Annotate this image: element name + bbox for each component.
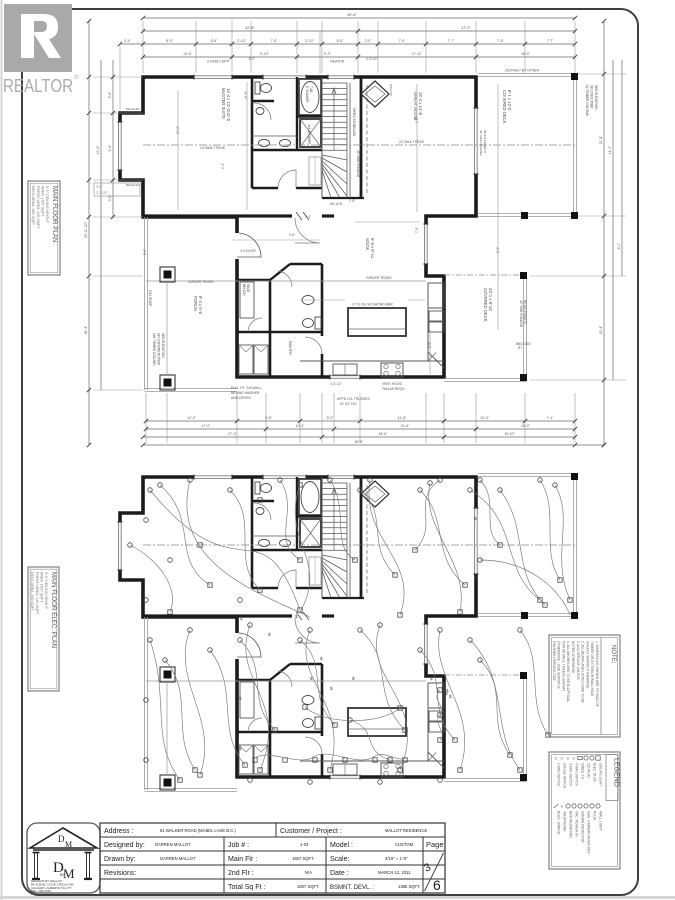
svg-text:CABLE T.V.: CABLE T.V. (581, 763, 585, 780)
svg-text:9'-9 x 9'-11: 9'-9 x 9'-11 (370, 238, 375, 259)
svg-text:56'-4": 56'-4" (84, 325, 88, 334)
svg-text:AREA: 1607 SQFT.: AREA: 1607 SQFT. (39, 572, 43, 603)
svg-text:FAN AS REQD: FAN AS REQD (382, 387, 405, 391)
svg-text:SEE ELEVATION: SEE ELEVATION (161, 333, 165, 358)
svg-text:14'-4 x 13'-0/12'-0: 14'-4 x 13'-0/12'-0 (226, 88, 231, 122)
svg-text:AREA: 1607 SQFT.: AREA: 1607 SQFT. (40, 186, 44, 217)
svg-text:ELEC. WIRING: ELEC. WIRING (557, 811, 561, 835)
svg-text:42" HIGH RAILING: 42" HIGH RAILING (519, 300, 523, 328)
svg-text:2-2436 CUPP: 2-2436 CUPP (207, 60, 230, 64)
svg-text:6'-6": 6'-6" (108, 144, 112, 152)
svg-text:AT 24" O/C: AT 24" O/C (340, 402, 357, 406)
svg-text:7'-7": 7'-7" (448, 39, 456, 43)
svg-text:7'-7": 7'-7" (547, 39, 555, 43)
svg-text:BENCH: BENCH (242, 284, 246, 296)
svg-text:ELEC. PLUG: ELEC. PLUG (593, 763, 597, 782)
svg-text:SINGLE SWITCH: SINGLE SWITCH (563, 763, 567, 789)
svg-text:9'-3": 9'-3" (324, 52, 332, 56)
svg-text:7'-0": 7'-0" (271, 39, 279, 43)
svg-text:Date :: Date : (330, 870, 349, 877)
svg-text:OPEN TO BELOW: OPEN TO BELOW (352, 108, 356, 137)
svg-text:Revisions:: Revisions: (104, 870, 136, 877)
svg-text:25'-10 1/2": 25'-10 1/2" (84, 221, 88, 238)
svg-text:DECK AREA: 589 SQFT.: DECK AREA: 589 SQFT. (31, 186, 35, 226)
svg-text:®: ® (74, 73, 79, 81)
svg-text:BEHIND WASHER: BEHIND WASHER (231, 391, 260, 395)
svg-text:Scale:: Scale: (330, 856, 350, 863)
svg-text:12'-4": 12'-4" (480, 416, 489, 420)
svg-text:6'-0": 6'-0" (617, 242, 621, 250)
svg-text:3'-4": 3'-4" (124, 39, 132, 43)
svg-text:Total Sq Ft :: Total Sq Ft : (228, 884, 265, 891)
svg-text:17'-11": 17'-11" (412, 52, 423, 56)
svg-text:BEVELED: BEVELED (126, 107, 141, 111)
svg-text:23'-1 x 8'-10: 23'-1 x 8'-10 (488, 288, 493, 311)
svg-text:NOTED OTHERWISE: NOTED OTHERWISE (571, 641, 575, 674)
svg-text:3'-6": 3'-6" (96, 185, 102, 189)
svg-text:3. ALL ARCHES ARE TO BE ELLIPT: 3. ALL ARCHES ARE TO BE ELLIPTICAL (566, 641, 570, 702)
svg-text:14 VAULT PEAK: 14 VAULT PEAK (200, 146, 226, 150)
svg-text:ON CONCRETE PIER: ON CONCRETE PIER (156, 333, 160, 366)
svg-text:3 WAY SWITCH: 3 WAY SWITCH (569, 763, 573, 787)
svg-text:3'-8": 3'-8" (108, 194, 112, 202)
svg-text:BEVELED: BEVELED (126, 183, 141, 187)
svg-text:N/A: N/A (305, 870, 312, 875)
svg-text:TIMBER OR EXTERIOR WALL FACE: TIMBER OR EXTERIOR WALL FACE (590, 641, 594, 697)
svg-text:2x6 TIMBER COLUMN: 2x6 TIMBER COLUMN (152, 333, 156, 366)
svg-text:FOR DETAILS. UNLESS SHOWN: FOR DETAILS. UNLESS SHOWN (561, 641, 565, 692)
svg-text:MAIN FLOOR PLAN: MAIN FLOOR PLAN (51, 186, 58, 242)
svg-text:PORCH AREA: 130 SQFT.: PORCH AREA: 130 SQFT. (35, 572, 39, 615)
svg-text:15'-4": 15'-4" (599, 325, 603, 334)
svg-text:WALL LIGHT: WALL LIGHT (599, 811, 603, 831)
svg-text:9'-1" CEILING HEIGHT: 9'-1" CEILING HEIGHT (44, 572, 48, 610)
svg-text:3'-10": 3'-10" (305, 39, 314, 43)
svg-text:FINISHED OPENING SIZE: FINISHED OPENING SIZE (552, 641, 556, 682)
svg-text:Designed by:: Designed by: (104, 842, 145, 849)
svg-text:18'-6": 18'-6" (379, 432, 388, 436)
svg-text:1-03: 1-03 (300, 842, 309, 847)
svg-text:4'-0 DOOR: 4'-0 DOOR (240, 249, 256, 253)
svg-text:COVERED DECK: COVERED DECK (502, 90, 507, 124)
svg-text:7'-4": 7'-4" (399, 39, 407, 43)
svg-text:Page: Page (426, 840, 444, 849)
svg-text:DARREN MALLOT: DARREN MALLOT (160, 856, 196, 861)
svg-text:MALLOT RESIDENCE: MALLOT RESIDENCE (385, 828, 427, 833)
svg-text:1. DIMENSIONS SHOWN ARE TO FAC: 1. DIMENSIONS SHOWN ARE TO FACE OF (595, 641, 599, 707)
svg-text:W/ 2x2 PICKETS: W/ 2x2 PICKETS (523, 300, 527, 324)
svg-text:17 FL ISL W/ EATING BAR: 17 FL ISL W/ EATING BAR (352, 303, 393, 307)
svg-text:DN 16 R: DN 16 R (330, 202, 343, 206)
svg-text:CEILING LIGHT: CEILING LIGHT (599, 763, 603, 786)
svg-text:7'-8": 7'-8" (415, 227, 419, 233)
svg-text:2x6 RAILY BY OTHER: 2x6 RAILY BY OTHER (505, 69, 540, 73)
svg-text:8'-4 x 6'-0: 8'-4 x 6'-0 (198, 296, 203, 315)
svg-text:VENT HOOD: VENT HOOD (382, 382, 403, 386)
svg-text:LEGEND: LEGEND (613, 758, 620, 787)
svg-text:NOTE:: NOTE: (610, 645, 616, 664)
svg-text:GIRDER TRUSS: GIRDER TRUSS (366, 276, 392, 280)
svg-text:2. ALL BEAMS AND LINTELS ARE T: 2. ALL BEAMS AND LINTELS ARE TO BE (581, 641, 585, 704)
svg-text:Address :: Address : (104, 828, 134, 835)
svg-text:220 PLUG: 220 PLUG (587, 763, 591, 778)
svg-text:PLUG: PLUG (593, 811, 597, 821)
svg-text:Job # :: Job # : (228, 842, 249, 849)
svg-text:W/ 2x2 PICKETS: W/ 2x2 PICKETS (483, 130, 487, 153)
svg-text:2'-2 1/2": 2'-2 1/2" (96, 191, 108, 195)
svg-text:21'-4": 21'-4" (599, 135, 603, 144)
svg-text:13'-6": 13'-6" (183, 52, 192, 56)
svg-text:14'-0": 14'-0" (608, 145, 612, 154)
svg-text:6'-0": 6'-0" (143, 249, 147, 255)
svg-text:5/12 ROOF: 5/12 ROOF (148, 290, 152, 306)
svg-text:TUB: TUB (309, 86, 313, 92)
svg-text:3'-8 1/2": 3'-8 1/2" (366, 57, 378, 61)
svg-text:VAC. ROUGH IN: VAC. ROUGH IN (575, 811, 579, 837)
svg-text:3/16" = 1'-0": 3/16" = 1'-0" (385, 856, 408, 861)
svg-text:Model :: Model : (330, 842, 353, 849)
svg-text:GAS. CARBON MONO DET.: GAS. CARBON MONO DET. (587, 811, 591, 854)
svg-text:7'-4": 7'-4" (547, 416, 555, 420)
svg-text:8'-0": 8'-0" (166, 39, 174, 43)
svg-text:9'-2": 9'-2" (327, 416, 335, 420)
svg-text:2nd Flr :: 2nd Flr : (228, 870, 254, 877)
svg-text:11'-8": 11'-8" (398, 416, 407, 420)
svg-text:4'-8 1/2": 4'-8 1/2" (330, 382, 342, 386)
svg-text:8'-1 x 12'-0: 8'-1 x 12'-0 (507, 90, 512, 111)
svg-text:6: 6 (433, 877, 441, 893)
svg-text:22 VAULT PEAK: 22 VAULT PEAK (399, 140, 425, 144)
svg-text:9'-1" CEILING HEIGHT: 9'-1" CEILING HEIGHT (45, 186, 49, 224)
svg-text:6' SOAKER: 6' SOAKER (305, 86, 309, 103)
svg-text:R.I.: R.I. (518, 346, 523, 350)
svg-text:CUSTOM: CUSTOM (395, 842, 414, 847)
svg-text:DARREN MALLOT: DARREN MALLOT (155, 842, 191, 847)
svg-text:PANTRY: PANTRY (288, 341, 292, 356)
svg-text:BATHROOM FAN: BATHROOM FAN (569, 811, 573, 838)
svg-text:ON CONC PIER: ON CONC PIER (589, 85, 593, 109)
svg-text:FULL HT. 2x6 WALL: FULL HT. 2x6 WALL (231, 386, 262, 390)
svg-text:HEATER: HEATER (330, 60, 345, 64)
svg-text:1607 SQFT.: 1607 SQFT. (292, 856, 314, 861)
svg-text:APPD LVL TRUSSES: APPD LVL TRUSSES (337, 397, 370, 401)
svg-text:5'-5": 5'-5" (337, 39, 345, 43)
svg-text:16'-4 x 14'-8: 16'-4 x 14'-8 (418, 92, 423, 115)
svg-text:1 WAY SWITCH: 1 WAY SWITCH (557, 763, 561, 787)
svg-text:1388 SQFT.: 1388 SQFT. (398, 884, 420, 889)
svg-text:D: D (58, 834, 65, 844)
svg-text:2-2x10 SPRUCE UNLESS: 2-2x10 SPRUCE UNLESS (576, 641, 580, 681)
svg-text:2'-8": 2'-8" (289, 233, 295, 237)
svg-text:GIRDER TRUSS: GIRDER TRUSS (188, 280, 214, 284)
svg-text:12'-2": 12'-2" (187, 416, 196, 420)
svg-text:61 WALKER ROAD (MABEL LAKE B.C: 61 WALKER ROAD (MABEL LAKE B.C.) (160, 828, 236, 833)
svg-text:10'-3": 10'-3" (296, 424, 305, 428)
svg-text:MASTER SUITE: MASTER SUITE (221, 88, 226, 119)
svg-text:4 WAY SWITCH: 4 WAY SWITCH (575, 763, 579, 787)
svg-text:MAIN FLOOR ELEC. PLAN: MAIN FLOOR ELEC. PLAN (50, 572, 57, 648)
svg-text:27'-2": 27'-2" (228, 432, 237, 436)
svg-text:MARCH 12, 2011: MARCH 12, 2011 (378, 870, 411, 875)
svg-text:BY: BY (60, 872, 66, 877)
svg-text:10'-2": 10'-2" (96, 145, 100, 154)
svg-text:21'-6": 21'-6" (401, 424, 410, 428)
svg-text:M: M (65, 840, 72, 849)
svg-text:SEAT: SEAT (246, 284, 250, 293)
svg-text:15'-0": 15'-0" (521, 52, 530, 56)
svg-text:REALTOR: REALTOR (3, 75, 73, 96)
svg-text:Customer / Project :: Customer / Project : (280, 828, 342, 835)
svg-text:NOOK: NOOK (365, 238, 370, 251)
svg-text:SMOKE DETECTOR: SMOKE DETECTOR (581, 811, 585, 843)
svg-text:3'-0": 3'-0" (365, 39, 373, 43)
svg-text:5'-0": 5'-0" (249, 57, 255, 61)
svg-text:49'-8": 49'-8" (347, 13, 357, 17)
svg-text:AND DRYER: AND DRYER (231, 396, 251, 400)
svg-text:Main Flr :: Main Flr : (228, 856, 257, 863)
svg-text:1607 SQFT.: 1607 SQFT. (297, 884, 319, 889)
svg-text:SEE ELEVATION: SEE ELEVATION (594, 85, 598, 110)
svg-text:4x3 SHOWER: 4x3 SHOWER (307, 124, 311, 145)
svg-text:#2 TIMBER COLUMN: #2 TIMBER COLUMN (585, 85, 589, 117)
svg-text:32'-8": 32'-8" (245, 26, 255, 30)
svg-text:9'-6": 9'-6" (265, 416, 273, 420)
svg-text:3'-6": 3'-6" (108, 91, 112, 99)
svg-text:17'-0": 17'-0" (202, 424, 211, 428)
svg-text:Drawn by:: Drawn by: (104, 856, 136, 863)
svg-text:2'-10": 2'-10" (237, 39, 246, 43)
svg-text:15'-0": 15'-0" (521, 424, 530, 428)
svg-text:2'-8": 2'-8" (349, 199, 355, 203)
svg-text:PORCH: PORCH (193, 296, 198, 311)
svg-text:5'-6": 5'-6" (211, 39, 219, 43)
svg-text:21'-8": 21'-8" (244, 91, 248, 99)
svg-text:9'-10": 9'-10" (260, 52, 269, 56)
svg-text:OTHERWISE - SIZE SHOWN IS: OTHERWISE - SIZE SHOWN IS (557, 641, 561, 690)
svg-text:7'-4": 7'-4" (305, 215, 311, 219)
svg-text:PORCH AREA: 130 SQFT.: PORCH AREA: 130 SQFT. (36, 186, 40, 229)
svg-text:42" HIGH RAILING: 42" HIGH RAILING (356, 150, 360, 178)
svg-text:COVERED DECK: COVERED DECK (483, 288, 488, 322)
svg-text:42" HIGH RAILING: 42" HIGH RAILING (479, 130, 483, 156)
svg-text:UNLESS SHOWN OTHERWISE: UNLESS SHOWN OTHERWISE (585, 641, 589, 689)
svg-text:19'-10": 19'-10" (504, 432, 515, 436)
svg-text:7'-5": 7'-5" (497, 39, 505, 43)
svg-text:BSMNT. DEVL. :: BSMNT. DEVL. : (330, 885, 375, 891)
svg-text:TEL: 239-0784: TEL: 239-0784 (31, 889, 51, 893)
svg-text:17'-0": 17'-0" (461, 26, 471, 30)
svg-text:DECK AREA: 589 SQFT.: DECK AREA: 589 SQFT. (30, 572, 34, 612)
svg-text:TELEPHONE: TELEPHONE (563, 811, 567, 832)
svg-text:GAS F/P: GAS F/P (389, 84, 393, 96)
svg-text:4'-4": 4'-4" (221, 163, 225, 169)
svg-text:49'-8": 49'-8" (355, 440, 364, 444)
